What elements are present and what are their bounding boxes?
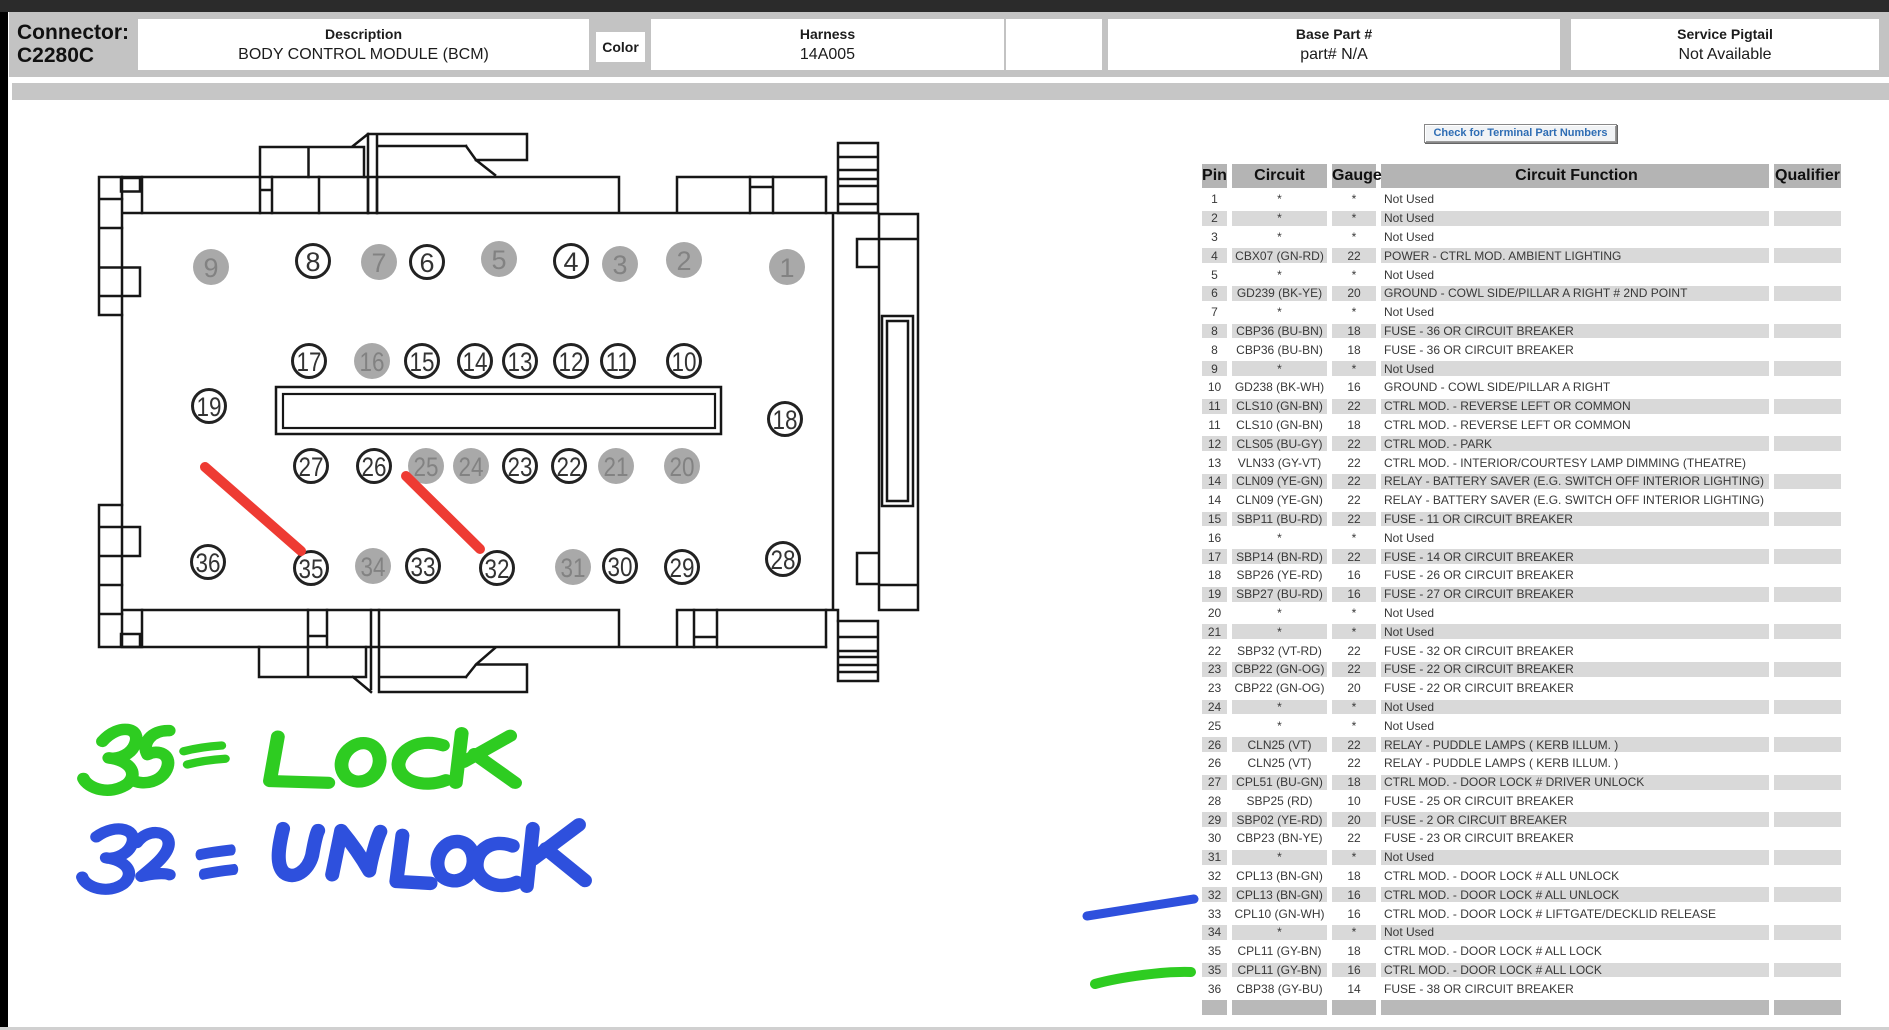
svg-text:32: 32	[485, 554, 510, 584]
svg-text:33: 33	[411, 552, 436, 582]
svg-text:34: 34	[361, 552, 386, 582]
svg-text:35: 35	[299, 554, 324, 584]
svg-text:8: 8	[305, 247, 320, 277]
svg-text:28: 28	[771, 545, 796, 575]
svg-text:5: 5	[491, 245, 506, 275]
svg-text:26: 26	[362, 452, 387, 482]
svg-text:21: 21	[604, 452, 629, 482]
svg-text:10: 10	[672, 347, 697, 377]
svg-text:6: 6	[419, 248, 434, 278]
svg-text:23: 23	[508, 452, 533, 482]
svg-text:36: 36	[196, 548, 221, 578]
svg-text:2: 2	[676, 246, 691, 276]
svg-text:14: 14	[463, 347, 488, 377]
svg-text:27: 27	[299, 452, 324, 482]
svg-text:20: 20	[670, 452, 695, 482]
svg-text:29: 29	[670, 553, 695, 583]
svg-text:19: 19	[197, 392, 222, 422]
svg-text:15: 15	[410, 347, 435, 377]
svg-text:13: 13	[508, 347, 533, 377]
svg-text:22: 22	[557, 452, 582, 482]
svg-text:3: 3	[612, 250, 627, 280]
svg-text:16: 16	[360, 347, 385, 377]
svg-text:4: 4	[563, 247, 578, 277]
svg-text:7: 7	[371, 248, 386, 278]
svg-text:24: 24	[459, 452, 484, 482]
svg-text:18: 18	[773, 405, 798, 435]
svg-text:31: 31	[561, 553, 586, 583]
svg-text:9: 9	[203, 253, 218, 283]
svg-text:17: 17	[297, 347, 322, 377]
svg-text:11: 11	[606, 347, 631, 377]
svg-text:1: 1	[779, 253, 794, 283]
svg-text:30: 30	[608, 552, 633, 582]
svg-text:12: 12	[559, 347, 584, 377]
svg-text:25: 25	[414, 452, 439, 482]
